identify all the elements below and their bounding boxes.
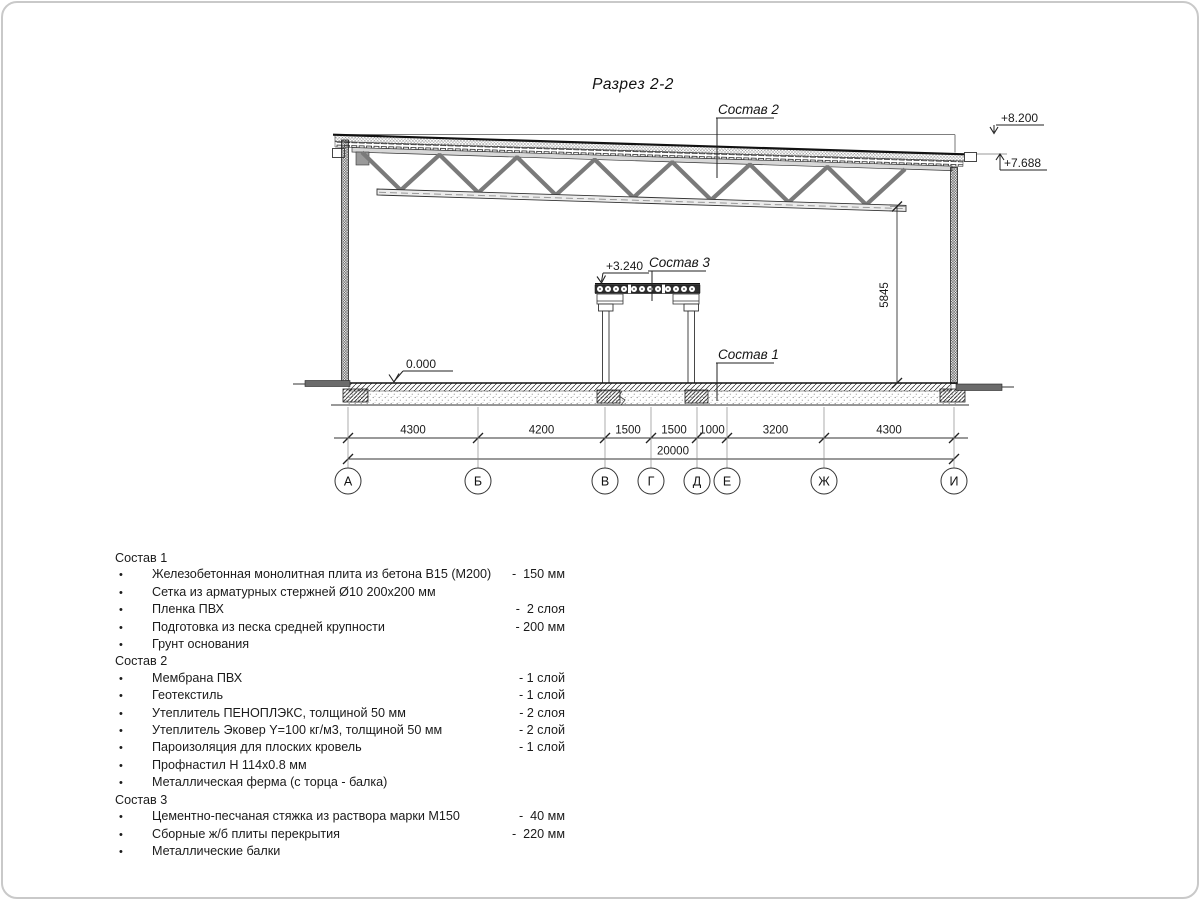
- svg-text:5845: 5845: [879, 282, 891, 308]
- legend-item-text: Железобетонная монолитная плита из бетон…: [152, 566, 512, 582]
- axis-label: А: [344, 475, 353, 489]
- legend-item-value: - 2 слоя: [519, 705, 565, 721]
- legend-item: •Металлические балки: [113, 843, 565, 860]
- bullet-icon: •: [113, 844, 152, 860]
- legend-item: •Подготовка из песка средней крупности- …: [113, 619, 565, 636]
- legend-item-text: Сетка из арматурных стержней Ø10 200x200…: [152, 584, 565, 600]
- svg-text:0.000: 0.000: [406, 357, 436, 371]
- legend: Состав 1•Железобетонная монолитная плита…: [113, 550, 565, 860]
- axis-label: Ж: [818, 475, 830, 489]
- svg-text:Состав 1: Состав 1: [718, 347, 779, 362]
- axis-label: В: [601, 475, 609, 489]
- legend-item: •Сетка из арматурных стержней Ø10 200x20…: [113, 584, 565, 601]
- dim-label: 3200: [763, 425, 789, 437]
- base-flashing-right: [956, 384, 1002, 391]
- svg-text:+8.200: +8.200: [1001, 111, 1038, 125]
- axis-label: Г: [648, 475, 655, 489]
- wall-left: [342, 140, 349, 384]
- axis-label: Е: [723, 475, 731, 489]
- platform-beam-right: [673, 294, 699, 304]
- axis-label: И: [950, 475, 959, 489]
- elevation-roof-high: +8.200: [990, 111, 1044, 134]
- legend-item: •Профнастил Н 114х0.8 мм: [113, 757, 565, 774]
- legend-section-title: Состав 1: [113, 550, 565, 566]
- legend-item-text: Утеплитель Эковер Y=100 кг/м3, толщиной …: [152, 722, 519, 738]
- legend-item: •Утеплитель Эковер Y=100 кг/м3, толщиной…: [113, 722, 565, 739]
- bullet-icon: •: [113, 602, 152, 618]
- axis-label: Д: [693, 475, 702, 489]
- floor-sand-band: [344, 391, 958, 405]
- dim-label: 1000: [699, 425, 725, 437]
- legend-item-value: - 40 мм: [519, 808, 565, 824]
- platform-column-right: [688, 311, 695, 383]
- legend-item-text: Профнастил Н 114х0.8 мм: [152, 757, 565, 773]
- bullet-icon: •: [113, 585, 152, 601]
- legend-item: •Пленка ПВХ- 2 слоя: [113, 601, 565, 618]
- legend-item: •Пароизоляция для плоских кровель- 1 сло…: [113, 739, 565, 756]
- legend-item: •Геотекстиль- 1 слой: [113, 687, 565, 704]
- legend-item: •Сборные ж/б плиты перекрытия- 220 мм: [113, 826, 565, 843]
- legend-item-text: Грунт основания: [152, 636, 565, 652]
- legend-item: •Утеплитель ПЕНОПЛЭКС, толщиной 50 мм- 2…: [113, 705, 565, 722]
- dimension-height: 5845: [879, 202, 906, 389]
- legend-item-text: Сборные ж/б плиты перекрытия: [152, 826, 512, 842]
- platform-column-left: [603, 311, 610, 383]
- legend-item-text: Пароизоляция для плоских кровель: [152, 739, 519, 755]
- bullet-icon: •: [113, 723, 152, 739]
- bullet-icon: •: [113, 775, 152, 791]
- legend-section-title: Состав 2: [113, 653, 565, 669]
- legend-item-value: - 200 мм: [515, 619, 565, 635]
- legend-item-value: - 2 слой: [519, 722, 565, 738]
- legend-item-text: Подготовка из песка средней крупности: [152, 619, 515, 635]
- foundation-column-left: [597, 390, 620, 403]
- axis-label: Б: [474, 475, 482, 489]
- floor-slab-band: [349, 383, 951, 391]
- bullet-icon: •: [113, 706, 152, 722]
- legend-item-text: Металлические балки: [152, 843, 565, 859]
- svg-text:+3.240: +3.240: [606, 259, 643, 273]
- legend-item: •Железобетонная монолитная плита из бето…: [113, 566, 565, 583]
- legend-item-value: - 220 мм: [512, 826, 565, 842]
- base-flashing-left: [305, 381, 350, 387]
- svg-text:Состав 3: Состав 3: [649, 255, 710, 270]
- svg-text:+7.688: +7.688: [1004, 156, 1041, 170]
- legend-item: •Мембрана ПВХ- 1 слой: [113, 670, 565, 687]
- bullet-icon: •: [113, 809, 152, 825]
- legend-item-text: Мембрана ПВХ: [152, 670, 519, 686]
- bullet-icon: •: [113, 567, 152, 583]
- legend-item-value: - 2 слоя: [516, 601, 565, 617]
- foundation-right-wall: [940, 389, 965, 402]
- dim-label: 4200: [529, 425, 555, 437]
- platform-beam-left: [597, 294, 623, 304]
- dim-total-label: 20000: [657, 446, 689, 458]
- roof-end-cap-right: [965, 153, 977, 162]
- legend-item-text: Утеплитель ПЕНОПЛЭКС, толщиной 50 мм: [152, 705, 519, 721]
- elevation-roof-low: +7.688: [977, 154, 1047, 170]
- legend-item-text: Металлическая ферма (с торца - балка): [152, 774, 565, 790]
- legend-item: •Цементно-песчаная стяжка из раствора ма…: [113, 808, 565, 825]
- elevation-floor: 0.000: [389, 357, 453, 382]
- legend-item-value: - 1 слой: [519, 739, 565, 755]
- legend-item-text: Пленка ПВХ: [152, 601, 516, 617]
- dim-label: 4300: [876, 425, 902, 437]
- section-drawing: Разрез 2-2: [0, 0, 1200, 540]
- legend-item: •Металлическая ферма (с торца - балка): [113, 774, 565, 791]
- foundation-column-right: [685, 390, 708, 403]
- elevation-platform: +3.240: [597, 259, 649, 283]
- wall-right: [951, 168, 958, 384]
- bullet-icon: •: [113, 827, 152, 843]
- svg-text:Состав 2: Состав 2: [718, 102, 779, 117]
- page: { "drawing": { "title": "Разрез 2-2", "c…: [0, 0, 1200, 900]
- legend-item-value: - 150 мм: [512, 566, 565, 582]
- dim-label: 4300: [400, 425, 426, 437]
- dim-label: 1500: [615, 425, 641, 437]
- dim-label: 1500: [661, 425, 687, 437]
- slab-joint: [662, 285, 665, 294]
- platform: [595, 284, 700, 383]
- legend-item: •Грунт основания: [113, 636, 565, 653]
- bullet-icon: •: [113, 620, 152, 636]
- legend-item-text: Геотекстиль: [152, 687, 519, 703]
- bullet-icon: •: [113, 740, 152, 756]
- bullet-icon: •: [113, 688, 152, 704]
- floor-assembly: [293, 381, 1014, 406]
- legend-section-title: Состав 3: [113, 792, 565, 808]
- axis-markers: АБВГДЕЖИ: [335, 407, 967, 494]
- bullet-icon: •: [113, 637, 152, 653]
- slab-joint: [628, 285, 631, 294]
- foundation-left-wall: [343, 389, 368, 402]
- legend-item-value: - 1 слой: [519, 687, 565, 703]
- column-capital-right: [684, 304, 699, 311]
- legend-item-value: - 1 слой: [519, 670, 565, 686]
- bullet-icon: •: [113, 671, 152, 687]
- column-capital-left: [599, 304, 614, 311]
- legend-item-text: Цементно-песчаная стяжка из раствора мар…: [152, 808, 519, 824]
- bullet-icon: •: [113, 758, 152, 774]
- drawing-title: Разрез 2-2: [592, 76, 674, 93]
